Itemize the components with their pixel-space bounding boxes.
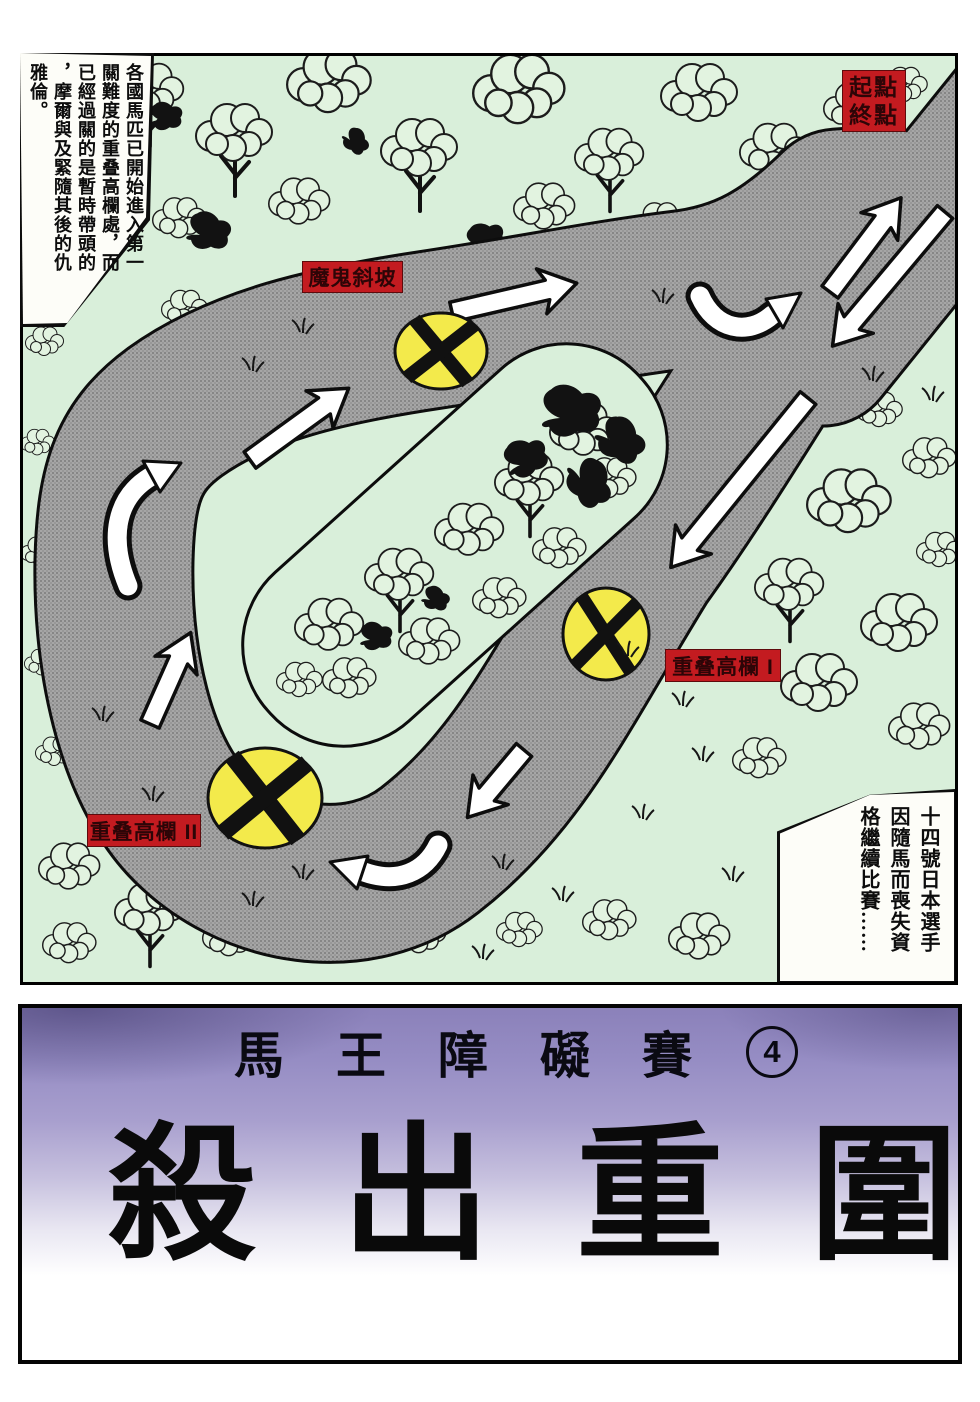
episode-number-badge: 4 — [746, 1026, 798, 1078]
title-block: 馬王障礙賽 4 殺出重圍 — [18, 1004, 962, 1364]
start-label-text: 起點 — [849, 73, 899, 101]
narration-column: 各國馬匹已開始進入第一 — [122, 63, 146, 301]
comic-page: 起點 終點 魔鬼斜坡 重叠高欄 I 重叠高欄 II 各國馬匹已開始進入第一 關難… — [0, 0, 980, 1402]
narration-column: 十四號日本選手 — [913, 806, 943, 970]
narration-panel-bottom-right: 十四號日本選手 因隨馬而喪失資 格繼續比賽…… — [777, 789, 955, 982]
narration-column: 關難度的重叠高欄處，而 — [98, 63, 122, 301]
narration-column: 格繼續比賽…… — [853, 806, 883, 970]
narration-column: 雅倫。 — [26, 63, 50, 301]
finish-label-text: 終點 — [849, 101, 899, 129]
narration-panel-top-left: 各國馬匹已開始進入第一 關難度的重叠高欄處，而 已經過關的是暫時帶頭的 ，摩爾與… — [20, 53, 154, 327]
narration-column: 因隨馬而喪失資 — [883, 806, 913, 970]
chapter-title: 殺出重圍 — [22, 1122, 958, 1270]
narration-column: ，摩爾與及緊隨其後的仇 — [50, 63, 74, 301]
hurdle-1-label: 重叠高欄 I — [665, 649, 781, 682]
series-title-row: 馬王障礙賽 4 — [22, 1016, 958, 1088]
start-finish-label: 起點 終點 — [842, 70, 906, 132]
narration-column: 已經過關的是暫時帶頭的 — [74, 63, 98, 301]
devil-slope-label: 魔鬼斜坡 — [302, 261, 403, 293]
narration-text: 十四號日本選手 因隨馬而喪失資 格繼續比賽…… — [853, 806, 943, 970]
hurdle-2-label: 重叠高欄 II — [87, 814, 201, 847]
narration-text: 各國馬匹已開始進入第一 關難度的重叠高欄處，而 已經過關的是暫時帶頭的 ，摩爾與… — [26, 63, 146, 301]
series-title: 馬王障礙賽 — [182, 1016, 744, 1088]
